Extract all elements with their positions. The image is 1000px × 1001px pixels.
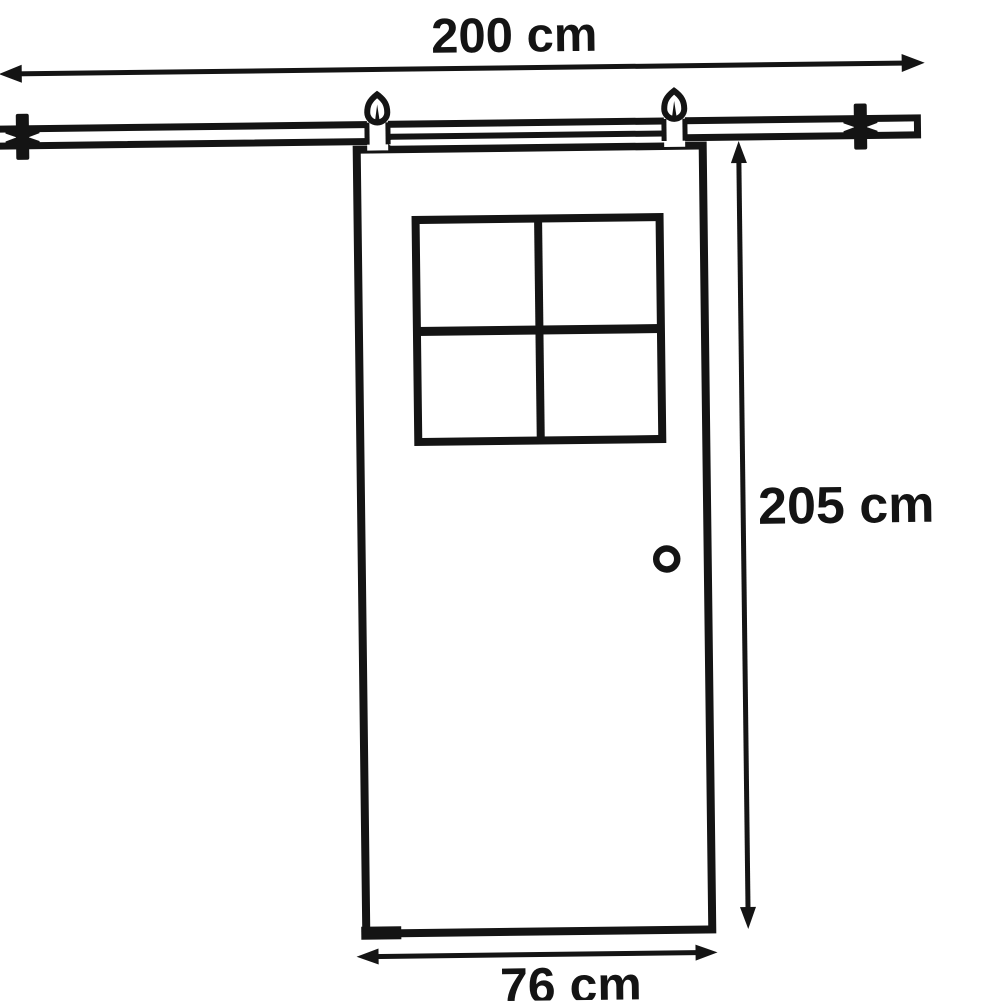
door-height-dimension-line: [739, 155, 748, 915]
diagram-canvas: 200 cm 205 cm 76 cm: [0, 0, 1000, 1001]
arrowhead-up-icon: [731, 141, 747, 163]
door-width-label: 76 cm: [500, 956, 642, 1001]
door-width-dimension: 76 cm: [356, 944, 718, 1001]
left-roller-hanger: [367, 94, 389, 150]
round-door-knob: [656, 548, 677, 569]
arrowhead-left-icon: [356, 949, 378, 965]
arrowhead-left-icon: [0, 65, 22, 83]
track-width-label: 200 cm: [431, 8, 598, 64]
door-dimension-drawing: 200 cm 205 cm 76 cm: [0, 0, 1000, 1001]
right-wall-bracket: [854, 103, 868, 149]
door-top-mounting-bar: [386, 133, 680, 149]
arrowhead-right-icon: [902, 54, 925, 72]
track-width-dimension-line: [15, 63, 911, 74]
arrowhead-right-icon: [695, 944, 717, 960]
arrowhead-down-icon: [740, 907, 756, 929]
right-roller-hanger: [664, 91, 686, 147]
track-width-dimension: 200 cm: [0, 4, 925, 83]
bottom-floor-guide-step: [361, 926, 401, 939]
left-wall-bracket: [16, 114, 30, 160]
door-width-dimension-line: [370, 953, 706, 957]
door-height-label: 205 cm: [758, 476, 935, 536]
window-horizontal-divider: [417, 329, 661, 332]
door-height-dimension: 205 cm: [731, 139, 940, 929]
four-pane-window: [416, 217, 663, 442]
